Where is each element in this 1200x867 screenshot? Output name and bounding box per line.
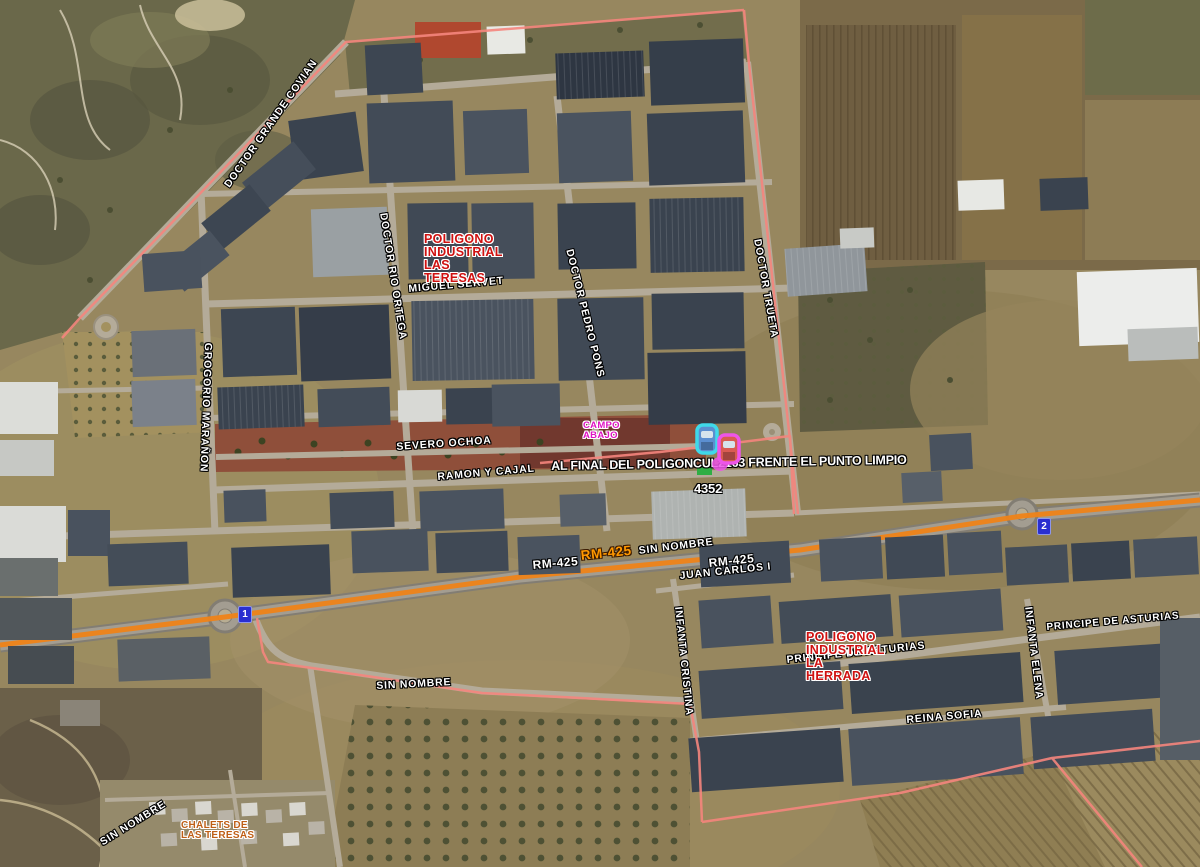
- street-label-sin-nombre-southwest: SIN NOMBRE: [98, 798, 168, 848]
- street-label-reina-sofia: REINA SOFIA: [906, 707, 983, 726]
- area-label-chalets-de-las-teresas: CHALETS DE LAS TERESAS: [181, 821, 254, 842]
- street-label-doctor-rio-ortega: DOCTOR RIO ORTEGA: [377, 212, 409, 341]
- street-label-infanta-cristina: INFANTA CRISTINA: [672, 606, 695, 716]
- label-overlay: DOCTOR GRANDE COVIANGROGORIO MARAÑONDOCT…: [0, 0, 1200, 867]
- street-label-principe-de-asturias-east: PRINCIPE DE ASTURIAS: [1046, 610, 1180, 633]
- route-label-rm-425-east: RM-425: [708, 551, 755, 570]
- street-label-principe-de-asturias-west: PRINCIPE DE ASTURIAS: [786, 639, 926, 665]
- vehicle-marker-vehicle-red[interactable]: [712, 431, 746, 478]
- street-label-infanta-elena: INFANTA ELENA: [1022, 606, 1045, 700]
- street-label-sin-nombre-highway: SIN NOMBRE: [638, 536, 714, 557]
- street-label-ramon-y-cajal: RAMON Y CAJAL: [437, 462, 535, 482]
- route-marker-1[interactable]: 1: [238, 606, 252, 623]
- route-label-rm-425-west: RM-425: [532, 554, 579, 572]
- map-viewport[interactable]: DOCTOR GRANDE COVIANGROGORIO MARAÑONDOCT…: [0, 0, 1200, 867]
- street-label-severo-ochoa: SEVERO OCHOA: [396, 434, 492, 453]
- area-label-campo-abajo: CAMPO ABAJO: [583, 421, 620, 441]
- street-label-doctor-grande-covian: DOCTOR GRANDE COVIAN: [222, 57, 320, 190]
- area-label-poligono-industrial-las-teresas: POLIGONO INDUSTRIAL LAS TERESAS: [424, 233, 503, 285]
- poi-label-destination-number: 4352: [694, 481, 722, 496]
- vehicle-red-icon: [712, 431, 746, 473]
- street-label-grogorio-maranon: GROGORIO MARAÑON: [197, 343, 214, 473]
- street-label-juan-carlos-i: JUAN CARLOS I: [679, 560, 772, 582]
- area-label-poligono-industrial-la-herrada: POLIGONO INDUSTRIAL LA HERRADA: [806, 631, 885, 683]
- route-label-rm-425-highlight: RM-425: [580, 543, 632, 563]
- street-label-miguel-servet: MIGUEL SERVET: [408, 275, 504, 295]
- route-marker-2[interactable]: 2: [1037, 518, 1051, 535]
- street-label-doctor-pedro-pons: DOCTOR PEDRO PONS: [563, 248, 607, 379]
- street-label-doctor-trueta: DOCTOR TRUETA: [751, 238, 780, 339]
- street-label-sin-nombre-south: SIN NOMBRE: [376, 676, 452, 692]
